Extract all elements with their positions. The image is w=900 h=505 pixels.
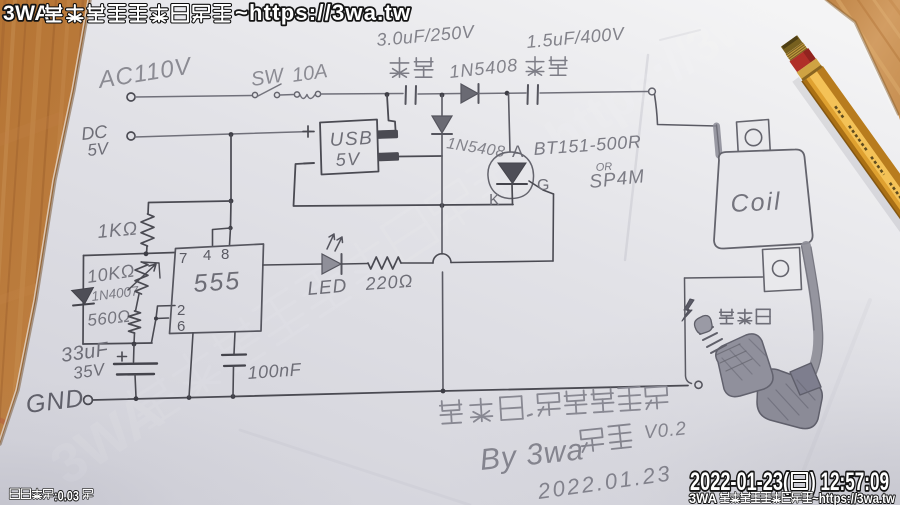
svg-text:100nF: 100nF: [247, 359, 302, 383]
svg-text:220Ω: 220Ω: [364, 271, 414, 294]
svg-text:K: K: [489, 192, 500, 209]
svg-text:LED: LED: [307, 276, 349, 300]
svg-text:4: 4: [203, 247, 211, 264]
svg-text:2: 2: [177, 302, 185, 319]
svg-text::0.03: :0.03: [54, 489, 79, 504]
svg-text:Coil: Coil: [730, 187, 782, 218]
svg-text:G: G: [537, 177, 549, 194]
svg-text:3WA: 3WA: [3, 2, 50, 25]
svg-text:USB: USB: [329, 128, 374, 151]
svg-text:~https://3wa.tw: ~https://3wa.tw: [235, 0, 411, 25]
svg-text:~https://3wa.tw: ~https://3wa.tw: [812, 491, 895, 505]
svg-text:555: 555: [192, 267, 242, 298]
svg-text:3WA: 3WA: [689, 491, 717, 505]
svg-text:6: 6: [177, 318, 185, 335]
svg-text:1KΩ: 1KΩ: [97, 219, 139, 243]
svg-text:5V: 5V: [86, 139, 110, 160]
svg-text:7: 7: [179, 250, 187, 267]
svg-text:5V: 5V: [335, 149, 362, 170]
svg-text:8: 8: [221, 246, 229, 263]
svg-text:V0.2: V0.2: [643, 418, 688, 443]
